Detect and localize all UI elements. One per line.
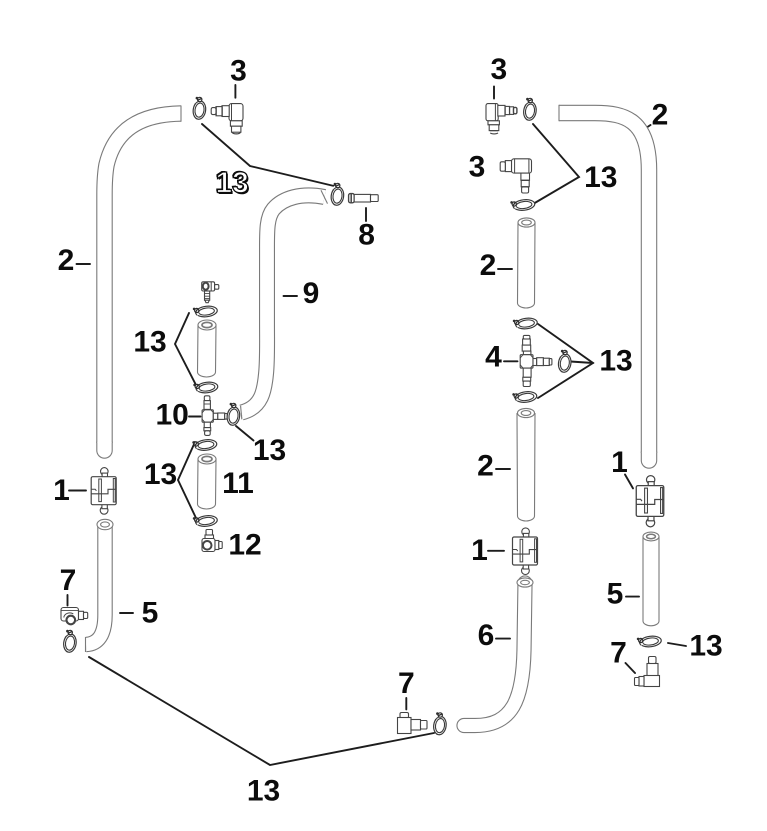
svg-text:11: 11: [222, 467, 254, 500]
svg-text:7: 7: [60, 564, 77, 597]
svg-text:3: 3: [469, 151, 486, 184]
svg-text:1: 1: [611, 446, 628, 479]
svg-text:13: 13: [584, 161, 617, 194]
svg-text:5: 5: [607, 577, 624, 610]
svg-text:12: 12: [228, 529, 261, 562]
svg-text:5: 5: [142, 596, 159, 629]
svg-text:6: 6: [478, 619, 495, 652]
svg-text:10: 10: [156, 399, 189, 432]
svg-text:2: 2: [477, 450, 494, 483]
svg-text:13: 13: [144, 458, 177, 491]
svg-text:2: 2: [480, 249, 497, 282]
svg-text:7: 7: [398, 667, 415, 700]
svg-text:13: 13: [253, 434, 286, 467]
svg-text:13: 13: [247, 775, 280, 808]
svg-text:13: 13: [599, 344, 632, 377]
svg-text:9: 9: [303, 277, 320, 310]
svg-text:8: 8: [358, 219, 375, 252]
svg-text:7: 7: [610, 637, 627, 670]
svg-text:3: 3: [230, 54, 247, 87]
svg-text:13: 13: [689, 630, 722, 663]
svg-text:2: 2: [652, 98, 669, 131]
svg-text:1: 1: [471, 534, 488, 567]
svg-text:13: 13: [216, 167, 249, 200]
svg-text:2: 2: [58, 244, 75, 277]
svg-text:4: 4: [485, 341, 502, 374]
svg-text:1: 1: [53, 474, 70, 507]
svg-text:3: 3: [490, 53, 507, 86]
svg-text:13: 13: [133, 326, 166, 359]
